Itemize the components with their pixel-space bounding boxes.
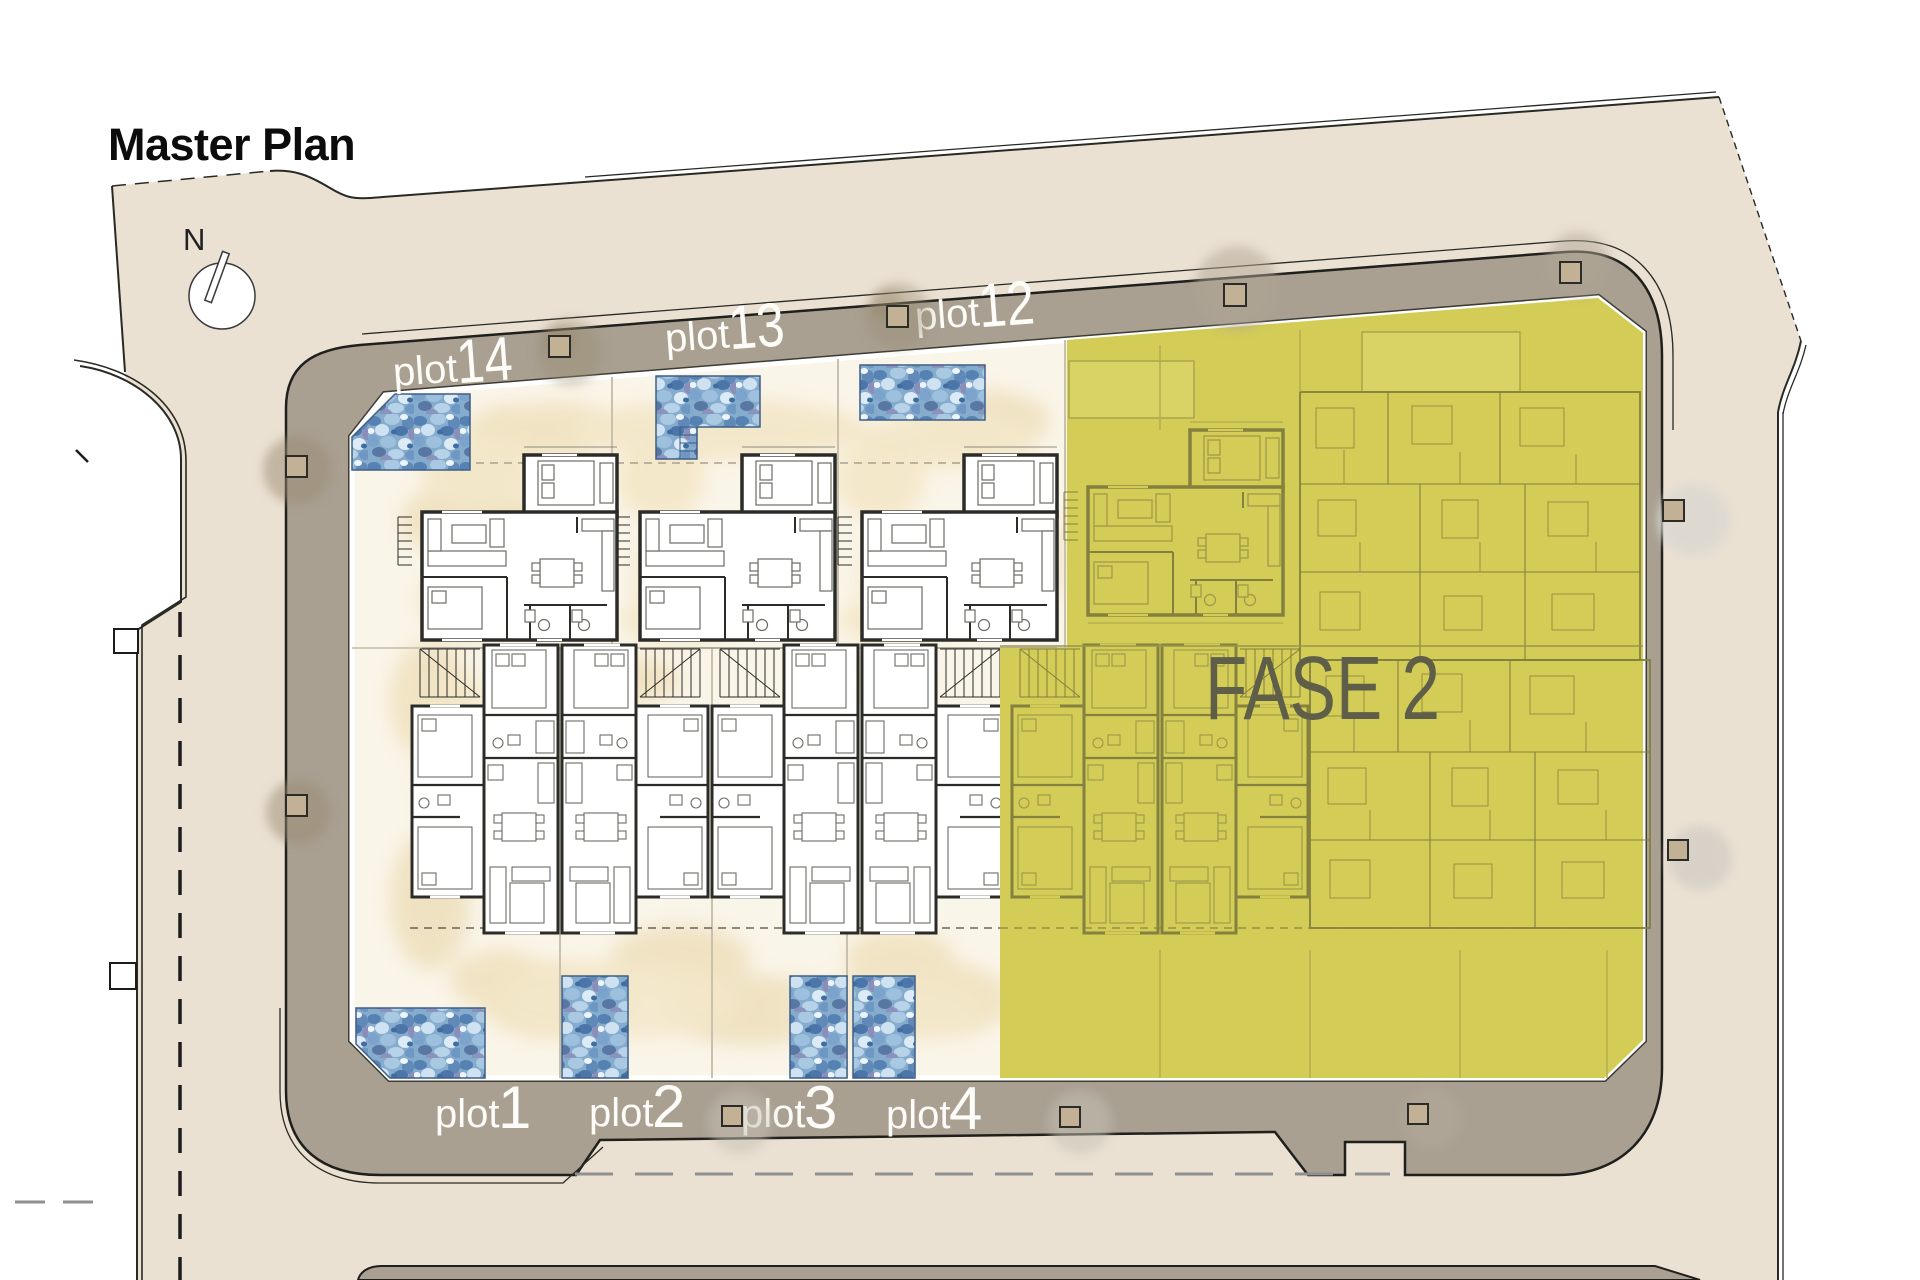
svg-text:2: 2 xyxy=(652,1073,685,1140)
svg-text:plot: plot xyxy=(435,1092,500,1136)
svg-text:4: 4 xyxy=(949,1075,982,1142)
svg-text:3: 3 xyxy=(804,1074,837,1141)
svg-text:plot: plot xyxy=(589,1091,654,1135)
svg-text:N: N xyxy=(183,222,205,257)
svg-text:plot: plot xyxy=(663,312,731,361)
svg-text:plot: plot xyxy=(391,346,459,395)
svg-text:1: 1 xyxy=(498,1074,531,1141)
svg-text:Master Plan: Master Plan xyxy=(108,119,355,170)
svg-text:plot: plot xyxy=(886,1093,951,1137)
svg-text:FASE 2: FASE 2 xyxy=(1205,639,1440,739)
svg-text:14: 14 xyxy=(454,324,515,397)
svg-text:12: 12 xyxy=(976,268,1037,341)
svg-text:13: 13 xyxy=(726,290,787,363)
